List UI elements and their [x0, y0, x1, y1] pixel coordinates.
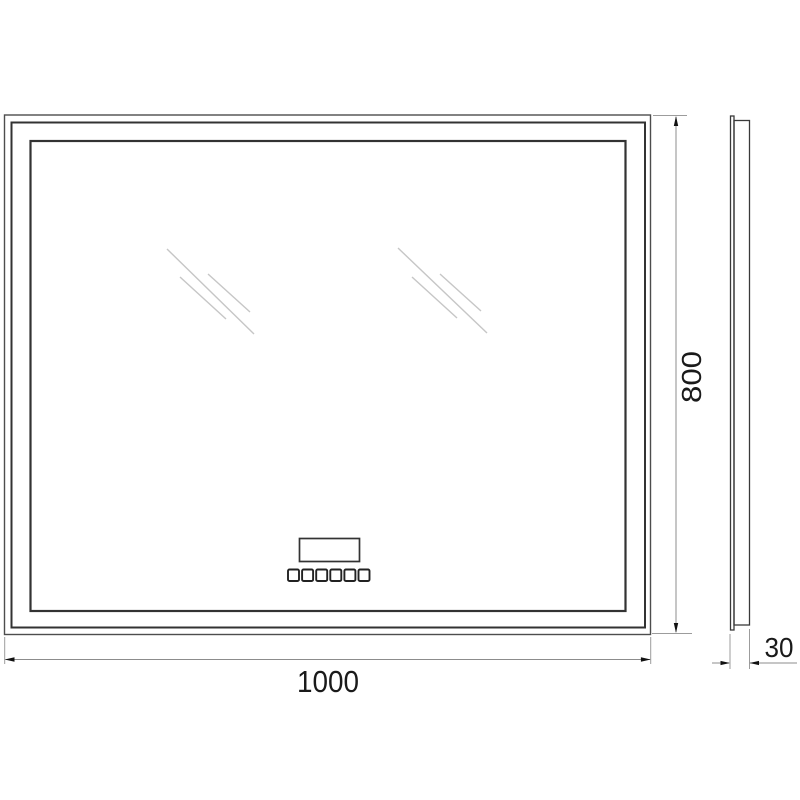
side-view-body [734, 121, 750, 626]
dimension-width-label: 1000 [297, 664, 359, 699]
arrowhead-left-icon [5, 657, 15, 661]
arrowhead-up-icon [674, 116, 678, 126]
dimension-height-label: 800 [676, 351, 707, 403]
reflection-marks-right [398, 248, 487, 333]
reflection-line [208, 274, 250, 312]
reflection-line [398, 248, 487, 333]
dimension-width: 1000 [5, 637, 651, 699]
front-lit-area-frame [31, 141, 626, 611]
drawing-canvas: 800 1000 30 [0, 0, 800, 800]
front-middle-frame [12, 123, 646, 628]
control-button-6 [359, 570, 370, 582]
control-button-5 [344, 570, 355, 582]
side-view [731, 116, 750, 630]
dimension-depth: 30 [712, 629, 797, 669]
arrowhead-right-icon [641, 657, 651, 661]
control-button-4 [330, 570, 341, 582]
reflection-marks-left [167, 249, 254, 334]
control-button-3 [316, 570, 327, 582]
front-outer-frame [5, 115, 651, 635]
arrowhead-down-icon [674, 623, 678, 633]
control-button-1 [288, 570, 299, 582]
reflection-line [440, 274, 481, 311]
dimension-height: 800 [652, 116, 707, 634]
arrowhead-right-icon [721, 661, 731, 665]
front-view [5, 115, 651, 635]
reflection-line [167, 249, 254, 334]
technical-drawing: 800 1000 30 [0, 0, 800, 800]
arrowhead-left-icon [750, 661, 760, 665]
control-button-2 [302, 570, 313, 582]
display-panel [300, 539, 360, 562]
control-buttons [288, 570, 370, 582]
dimension-depth-label: 30 [765, 632, 794, 663]
